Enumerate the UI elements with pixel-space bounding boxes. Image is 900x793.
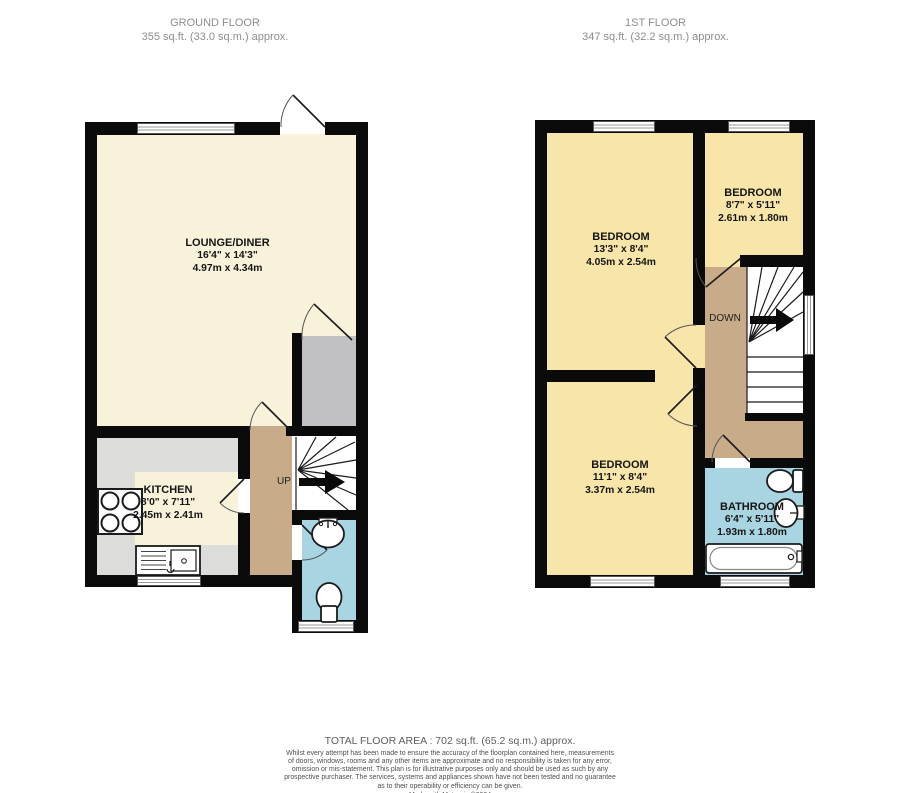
ground-floor-title: GROUND FLOOR [90,17,340,31]
wall [292,510,302,525]
room-size-metric: 4.05m x 2.54m [552,257,690,270]
room-name: LOUNGE/DINER [130,237,325,250]
first-floor-header: 1ST FLOOR 347 sq.ft. (32.2 sq.m.) approx… [528,17,783,45]
window [804,295,814,355]
wall [745,413,803,421]
wall [292,510,368,520]
lounge-label: LOUNGE/DINER 16'4" x 14'3" 4.97m x 4.34m [130,237,325,276]
wall [85,122,97,587]
footer: TOTAL FLOOR AREA : 702 sq.ft. (65.2 sq.m… [0,735,900,793]
bedroom1-doorway [693,325,705,368]
room-size-metric: 2.61m x 1.80m [686,213,820,226]
wall [356,122,368,633]
first-floor-area: 347 sq.ft. (32.2 sq.m.) approx. [528,31,783,45]
ground-floor-header: GROUND FLOOR 355 sq.ft. (33.0 sq.m.) app… [90,17,340,45]
wall [292,333,302,426]
first-floor-title: 1ST FLOOR [528,17,783,31]
wc-area [302,520,356,620]
wall [535,120,547,588]
bedroom3-label: BEDROOM 11'1" x 8'4" 3.37m x 2.54m [551,459,689,498]
wall [292,560,302,620]
wall [705,458,715,468]
room-name: BEDROOM [551,459,689,472]
ground-floor-area: 355 sq.ft. (33.0 sq.m.) approx. [90,31,340,45]
room-size-metric: 2.45m x 2.41m [100,510,236,523]
room-size-imperial: 8'0" x 7'11" [100,497,236,510]
wall [535,370,655,382]
landing-area [705,267,747,458]
wall [238,426,250,479]
kitchen-label: KITCHEN 8'0" x 7'11" 2.45m x 2.41m [100,484,236,523]
room-name: BATHROOM [692,501,812,514]
wall [693,368,705,575]
landing-area [745,421,803,458]
stairs-down-area [747,267,803,413]
wall [740,255,803,267]
room-name: KITCHEN [100,484,236,497]
bedroom2-doorway [705,255,740,267]
bedroom1-label: BEDROOM 13'3" x 8'4" 4.05m x 2.54m [552,231,690,270]
room-size-imperial: 11'1" x 8'4" [551,472,689,485]
stairs-up-label: UP [267,476,301,487]
room-name: BEDROOM [686,187,820,200]
stairs-up-area [296,437,356,510]
room-name: BEDROOM [552,231,690,244]
room-size-imperial: 13'3" x 8'4" [552,244,690,257]
room-size-imperial: 8'7" x 5'11" [686,200,820,213]
window [137,123,235,134]
hallway-area [250,438,292,575]
front-door [281,95,325,127]
window [590,576,655,587]
wall [750,458,803,468]
disclaimer-text: Whilst every attempt has been made to en… [284,750,616,791]
room-size-metric: 3.37m x 2.54m [551,485,689,498]
floorplan-page: GROUND FLOOR 355 sq.ft. (33.0 sq.m.) app… [0,0,900,793]
bedroom3-doorway [655,370,693,382]
window [720,576,790,587]
total-floor-area: TOTAL FLOOR AREA : 702 sq.ft. (65.2 sq.m… [0,735,900,747]
wall [286,426,368,436]
window [593,121,655,132]
bathroom-label: BATHROOM 6'4" x 5'11" 1.93m x 1.80m [692,501,812,540]
room-size-imperial: 6'4" x 5'11" [692,514,812,527]
window [298,621,354,632]
stairs-down-label: DOWN [702,313,748,324]
room-size-metric: 1.93m x 1.80m [692,527,812,540]
wall [85,426,250,438]
window [728,121,790,132]
window [137,576,201,586]
storage-cupboard-area [302,336,356,426]
wall [238,513,250,575]
room-size-imperial: 16'4" x 14'3" [130,250,325,263]
bedroom2-label: BEDROOM 8'7" x 5'11" 2.61m x 1.80m [686,187,820,226]
room-size-metric: 4.97m x 4.34m [130,263,325,276]
